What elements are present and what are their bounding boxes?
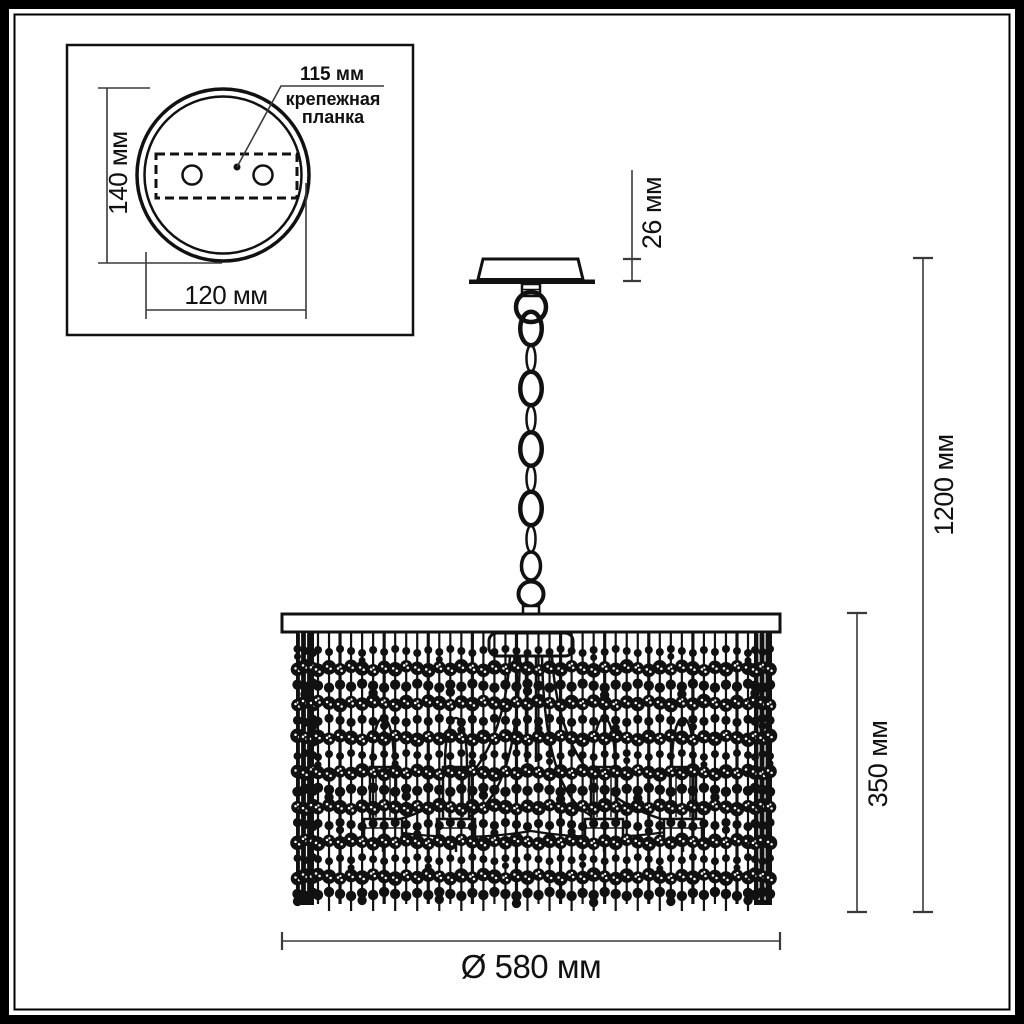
- label-plate-offset: 115 мм: [300, 64, 364, 85]
- label-shade-height: 350 мм: [863, 721, 893, 808]
- dim-1200: [913, 258, 933, 912]
- label-plate-width: 120 мм: [184, 280, 267, 310]
- chain-carabiner: [522, 552, 541, 580]
- label-canopy-height: 26 мм: [637, 177, 667, 249]
- chain: [520, 312, 542, 552]
- inset-top-view: 140 мм 120 мм 115 мм крепежная планка: [67, 45, 413, 335]
- shade-top-plate: [282, 614, 780, 632]
- technical-drawing: 140 мм 120 мм 115 мм крепежная планка: [0, 0, 1024, 1024]
- bead-curtain: [290, 633, 777, 911]
- label-canopy-diameter: 140 мм: [103, 131, 133, 214]
- label-mounting-bar-2: планка: [302, 107, 365, 127]
- ceiling-canopy: [478, 259, 583, 280]
- chandelier-elevation: [282, 259, 780, 911]
- label-mounting-bar-1: крепежная: [286, 89, 381, 109]
- label-overall-height: 1200 мм: [929, 434, 959, 535]
- label-shade-diameter: Ø 580 мм: [461, 948, 601, 985]
- drawing-page: 140 мм 120 мм 115 мм крепежная планка: [0, 0, 1024, 1024]
- hanging-ring-bottom: [519, 582, 544, 607]
